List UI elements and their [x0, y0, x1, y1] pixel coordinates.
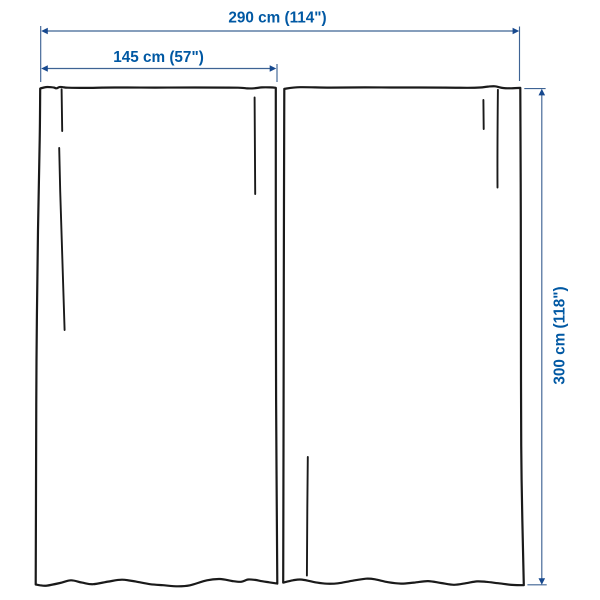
- svg-text:145 cm (57"): 145 cm (57"): [113, 49, 204, 66]
- svg-text:300 cm (118"): 300 cm (118"): [552, 286, 569, 384]
- svg-text:290 cm (114"): 290 cm (114"): [228, 10, 326, 27]
